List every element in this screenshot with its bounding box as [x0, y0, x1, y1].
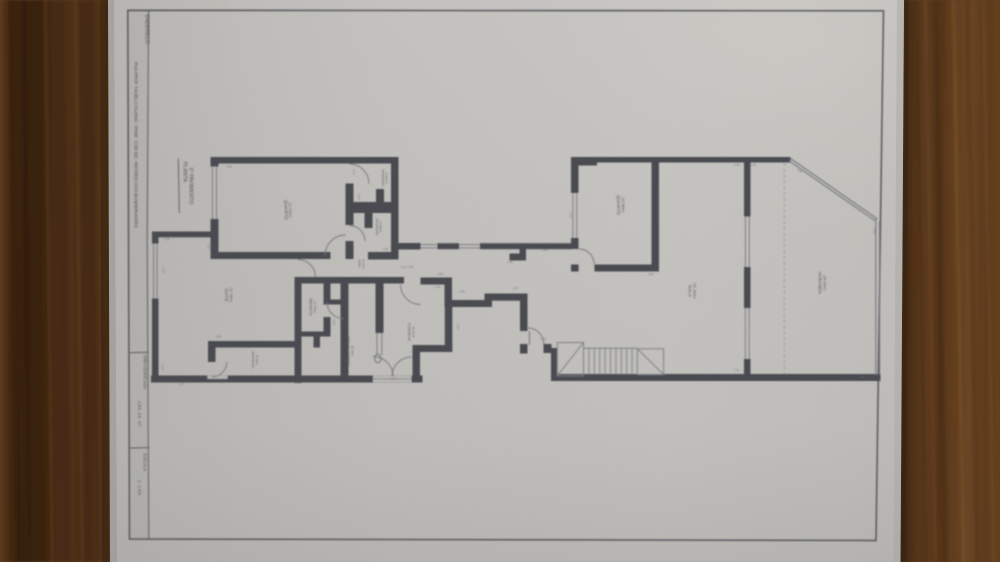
svg-text:BANHEIRO: BANHEIRO: [381, 170, 385, 187]
svg-text:(41.26m²): (41.26m²): [693, 283, 697, 299]
svg-text:(1.3m²): (1.3m²): [361, 259, 365, 268]
svg-text:1.92: 1.92: [751, 163, 757, 167]
svg-text:(11.06m²): (11.06m²): [288, 202, 292, 217]
svg-text:4.90: 4.90: [226, 165, 232, 169]
svg-text:SALA: SALA: [688, 285, 693, 298]
svg-text:QUARTO: QUARTO: [616, 195, 621, 215]
svg-text:(8.1m²): (8.1m²): [411, 327, 415, 338]
svg-text:2.70: 2.70: [162, 267, 166, 273]
svg-text:(12.48m²): (12.48m²): [621, 197, 625, 213]
svg-text:(6.3m²): (6.3m²): [350, 346, 354, 356]
svg-text:ÁREA EDIFICADA: ÁREA EDIFICADA: [142, 355, 148, 390]
svg-text:2.20: 2.20: [569, 212, 573, 218]
svg-text:0.15: 0.15: [160, 364, 164, 370]
svg-text:0.70: 0.70: [207, 243, 211, 249]
svg-text:2.52: 2.52: [438, 272, 444, 276]
svg-text:PLANTA: PLANTA: [181, 162, 187, 183]
svg-text:2.41: 2.41: [435, 285, 441, 289]
svg-text:1.47: 1.47: [513, 286, 519, 290]
svg-text:1.50: 1.50: [357, 194, 361, 200]
svg-text:1.34: 1.34: [542, 248, 548, 252]
svg-text:VARANDA: VARANDA: [818, 272, 823, 295]
svg-text:RUA PROF. TACIEL CYLLENO Nº5: RUA PROF. TACIEL CYLLENO Nº588 COB 302 -…: [133, 62, 139, 228]
svg-text:ENDEREÇO:: ENDEREÇO:: [143, 15, 149, 46]
svg-text:3.47: 3.47: [352, 169, 356, 175]
svg-text:SUITE: SUITE: [224, 288, 229, 301]
svg-text:2.18: 2.18: [164, 237, 170, 241]
svg-text:(3.49m²): (3.49m²): [379, 221, 383, 232]
svg-text:ESCALA: ESCALA: [142, 454, 147, 472]
svg-text:0.95: 0.95: [859, 375, 865, 379]
svg-text:1.44: 1.44: [390, 377, 396, 381]
svg-text:3.05: 3.05: [216, 335, 222, 339]
svg-text:BANHEIRO: BANHEIRO: [375, 219, 379, 236]
svg-text:2.07: 2.07: [456, 324, 460, 330]
svg-text:2.65: 2.65: [332, 319, 336, 325]
svg-text:0.15 0.49: 0.15 0.49: [401, 265, 414, 269]
svg-text:3.25: 3.25: [383, 247, 389, 251]
svg-text:(3.36m²): (3.36m²): [385, 172, 389, 183]
svg-text:1º PAVIMENTO: 1º PAVIMENTO: [187, 167, 193, 204]
svg-text:0.49: 0.49: [507, 260, 513, 264]
svg-text:1.40: 1.40: [459, 289, 465, 293]
svg-text:180.38 m²: 180.38 m²: [137, 401, 142, 427]
svg-text:2.40: 2.40: [648, 272, 654, 276]
svg-text:COZINHA: COZINHA: [407, 323, 411, 341]
svg-text:(1.74m²): (1.74m²): [313, 301, 317, 313]
svg-text:AREA DE SERVIÇO: AREA DE SERVIÇO: [346, 336, 350, 367]
svg-text:7.11: 7.11: [734, 368, 740, 372]
svg-text:(26.06m²): (26.06m²): [823, 275, 827, 291]
svg-text:BANHEIRO: BANHEIRO: [251, 352, 255, 369]
svg-text:QUARTO: QUARTO: [284, 200, 289, 220]
svg-text:1:100: 1:100: [137, 480, 142, 495]
svg-text:3.36: 3.36: [734, 163, 740, 167]
svg-text:(11.78m²): (11.78m²): [229, 288, 233, 303]
svg-text:(2.5m²): (2.5m²): [255, 355, 259, 365]
svg-text:CIRC.: CIRC.: [358, 260, 362, 269]
svg-text:1.07: 1.07: [178, 382, 184, 386]
svg-text:1.23: 1.23: [540, 337, 546, 341]
svg-text:3.80: 3.80: [872, 228, 876, 234]
svg-text:DEPOSITO: DEPOSITO: [309, 298, 313, 316]
